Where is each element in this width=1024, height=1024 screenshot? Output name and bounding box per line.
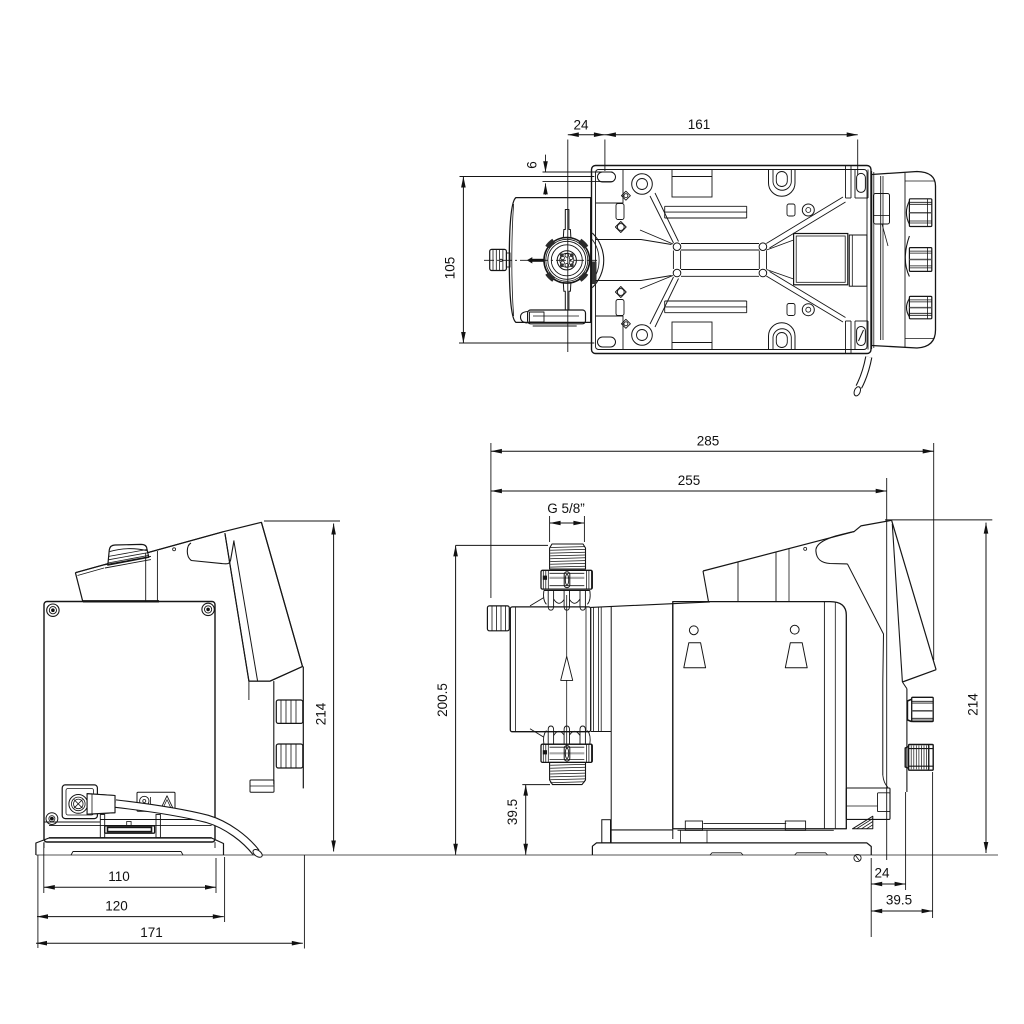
svg-text:24: 24	[573, 118, 589, 133]
svg-text:214: 214	[313, 702, 328, 725]
svg-text:200.5: 200.5	[435, 683, 450, 717]
svg-text:285: 285	[697, 434, 720, 449]
svg-text:120: 120	[105, 898, 128, 913]
svg-text:214: 214	[966, 693, 981, 716]
svg-text:6: 6	[525, 161, 540, 169]
svg-text:105: 105	[443, 257, 458, 280]
svg-text:255: 255	[678, 473, 701, 488]
svg-text:39.5: 39.5	[505, 799, 520, 825]
svg-text:24: 24	[874, 866, 890, 881]
svg-text:39.5: 39.5	[886, 893, 912, 908]
svg-text:110: 110	[108, 869, 130, 884]
svg-text:G 5/8”: G 5/8”	[547, 501, 585, 516]
svg-text:161: 161	[688, 117, 711, 132]
svg-text:171: 171	[140, 925, 163, 940]
